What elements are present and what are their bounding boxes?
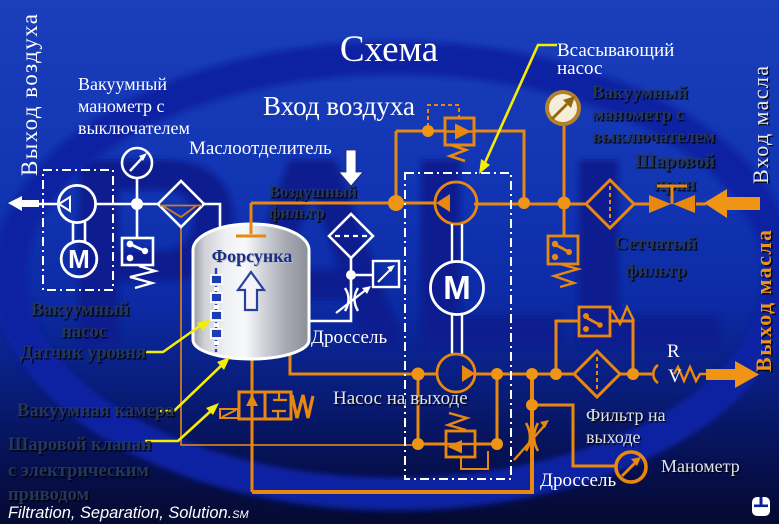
svg-text:приводом: приводом: [8, 485, 89, 505]
svg-text:M: M: [68, 244, 90, 274]
svg-text:Маслоотделитель: Маслоотделитель: [189, 138, 332, 159]
svg-text:Вход воздуха: Вход воздуха: [263, 91, 415, 121]
svg-text:R: R: [667, 341, 680, 362]
svg-text:Сетчатый: Сетчатый: [615, 233, 697, 253]
svg-text:выключателем: выключателем: [592, 126, 715, 146]
svg-text:Датчик уровня: Датчик уровня: [20, 343, 146, 363]
svg-text:Схема: Схема: [340, 29, 438, 70]
svg-text:насос: насос: [61, 322, 107, 342]
svg-text:V: V: [668, 366, 682, 387]
svg-text:с электрическим: с электрическим: [8, 461, 149, 481]
svg-text:насос: насос: [557, 58, 602, 79]
svg-text:Форсунка: Форсунка: [212, 246, 293, 266]
svg-text:Шаровой клапан: Шаровой клапан: [8, 435, 152, 455]
svg-text:Вакуумная камера: Вакуумная камера: [17, 401, 174, 421]
svg-text:манометр с: манометр с: [592, 104, 684, 124]
svg-text:Filtration, Separation, Soluti: Filtration, Separation, Solution.SM: [8, 504, 249, 522]
svg-text:Вакуумный: Вакуумный: [78, 74, 167, 94]
svg-text:Дроссель: Дроссель: [311, 327, 387, 348]
svg-text:Вакуумный: Вакуумный: [31, 300, 130, 320]
svg-text:выключателем: выключателем: [78, 118, 190, 138]
svg-text:Воздушный: Воздушный: [269, 182, 358, 201]
svg-text:Шаровой: Шаровой: [635, 151, 716, 172]
svg-text:Вход масла: Вход масла: [748, 66, 773, 184]
svg-text:фильтр: фильтр: [269, 203, 325, 222]
svg-text:Дроссель: Дроссель: [540, 470, 616, 491]
svg-text:Вакуумный: Вакуумный: [592, 82, 688, 102]
svg-text:Насос на выходе: Насос на выходе: [333, 388, 468, 409]
svg-text:Фильтр на: Фильтр на: [586, 405, 666, 425]
svg-text:Выход воздуха: Выход воздуха: [17, 14, 42, 176]
svg-text:выходе: выходе: [586, 427, 641, 447]
svg-text:Выход масла: Выход масла: [751, 230, 776, 372]
svg-text:фильтр: фильтр: [626, 260, 687, 280]
svg-text:манометр с: манометр с: [78, 96, 165, 116]
svg-text:M: M: [443, 269, 471, 306]
svg-text:Манометр: Манометр: [661, 456, 740, 476]
